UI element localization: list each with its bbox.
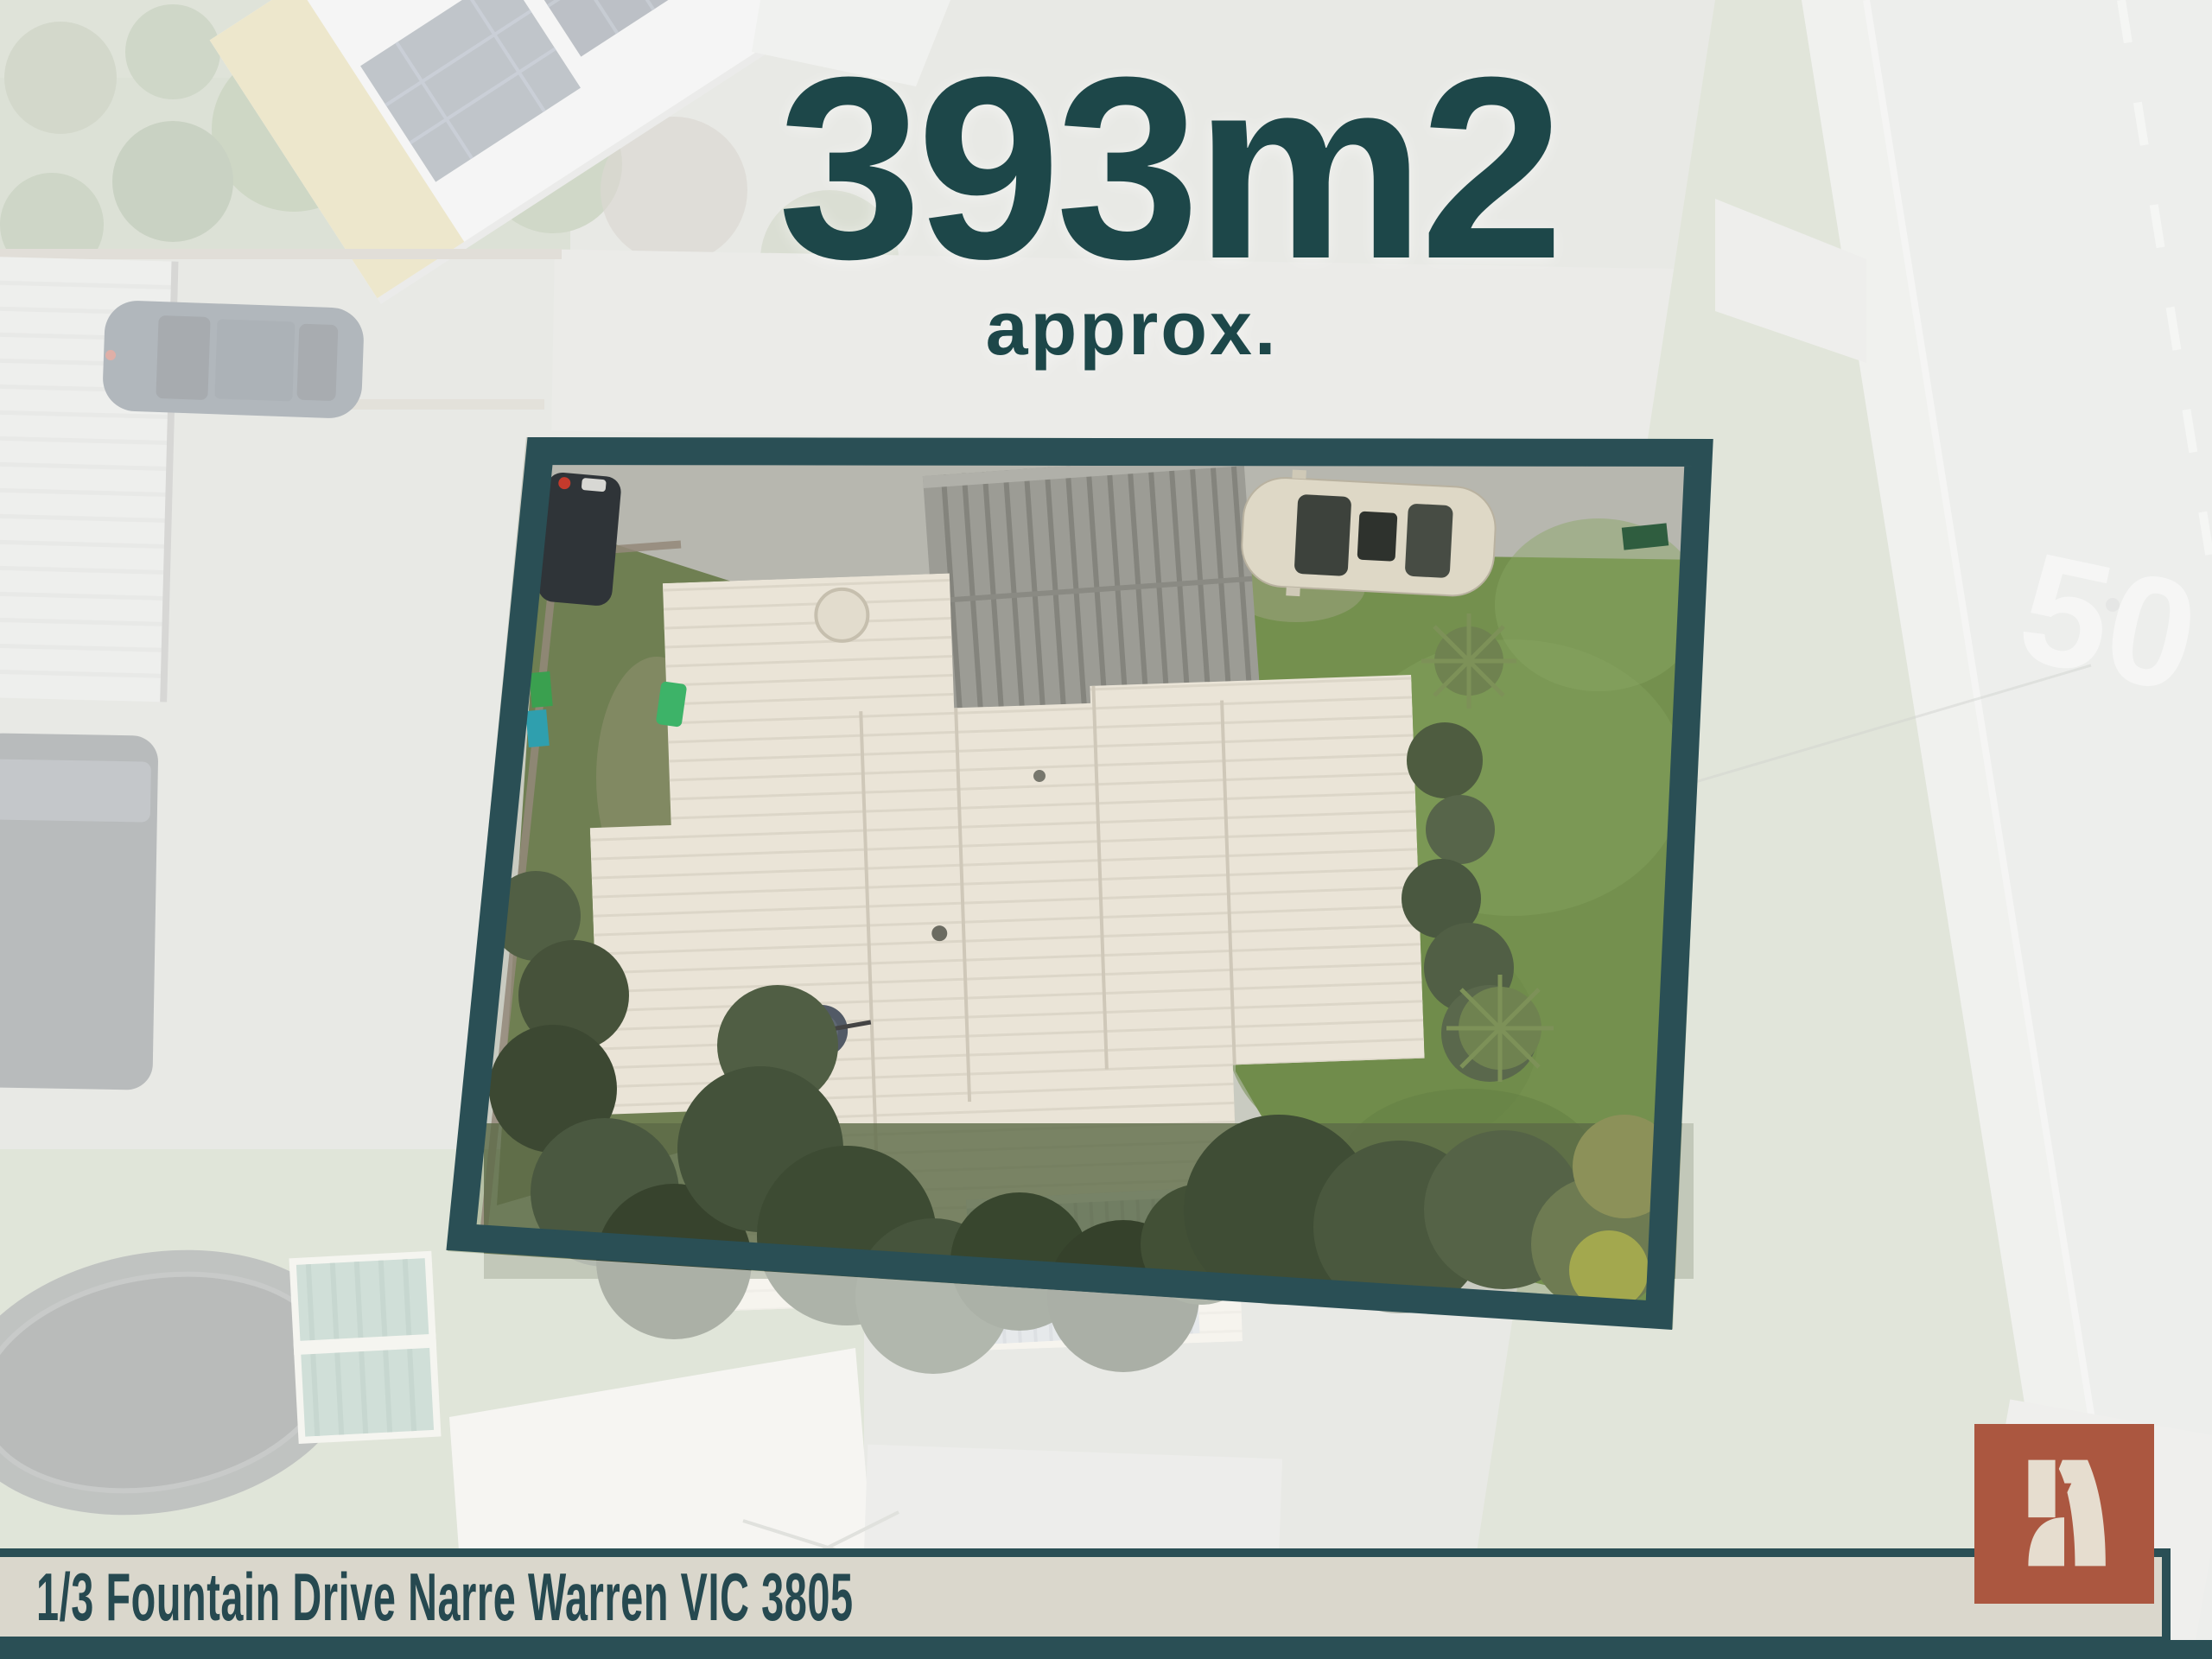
agency-logo-a-icon [1974,1424,2154,1604]
blue-bin [525,709,550,747]
land-area-text: 393m2 [778,45,1486,291]
lawn-texture [1495,518,1702,691]
property-address-text: 1/3 Fountain Drive Narre Warren VIC 3805 [36,1557,854,1637]
agency-logo [1974,1424,2154,1604]
headline-block: 393m2 approx. [778,45,1486,372]
green-bin [529,671,552,708]
garden-bench [1622,523,1669,550]
parked-car [1239,467,1497,607]
roof-vent [815,588,868,642]
address-bar: 1/3 Fountain Drive Narre Warren VIC 3805 [0,1548,2171,1645]
marketing-image: 50 [0,0,2212,1659]
